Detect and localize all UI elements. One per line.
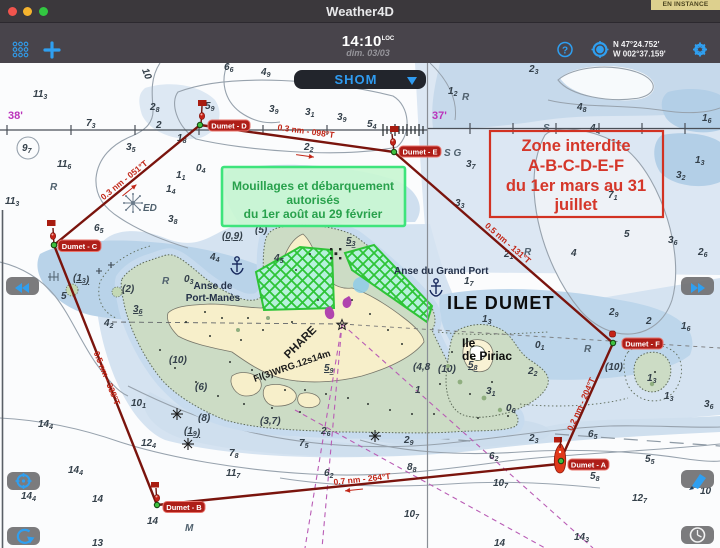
svg-text:Dumet - C: Dumet - C [62, 242, 98, 251]
svg-text:37': 37' [432, 110, 447, 122]
svg-text:Dumet - A: Dumet - A [571, 461, 607, 470]
svg-text:W 002°37.159': W 002°37.159' [613, 50, 666, 59]
svg-text:2: 2 [155, 120, 162, 131]
svg-text:Anse de: Anse de [194, 281, 233, 292]
svg-text:R: R [462, 92, 470, 103]
svg-text:du 1er mars au 31: du 1er mars au 31 [506, 177, 646, 195]
svg-text:2: 2 [644, 63, 651, 65]
svg-text:Zone interdite: Zone interdite [521, 137, 630, 155]
svg-text:(2): (2) [122, 284, 135, 295]
svg-text:5: 5 [624, 229, 630, 240]
svg-text:(10): (10) [169, 355, 187, 366]
svg-text:(8): (8) [198, 413, 211, 424]
svg-text:S G: S G [444, 148, 461, 159]
svg-text:du 1er août au 29 février: du 1er août au 29 février [244, 207, 383, 221]
svg-text:2: 2 [645, 316, 652, 327]
svg-text:juillet: juillet [553, 196, 598, 214]
svg-text:N 47°24.752': N 47°24.752' [613, 40, 660, 49]
svg-text:ED: ED [143, 203, 157, 214]
svg-text:4: 4 [570, 248, 577, 259]
svg-text:(3,7): (3,7) [260, 416, 281, 427]
svg-text:de Piriac: de Piriac [462, 349, 512, 363]
svg-text:(6): (6) [195, 382, 208, 393]
svg-text:ILE DUMET: ILE DUMET [447, 293, 555, 313]
svg-text:13: 13 [92, 538, 104, 548]
svg-text:Dumet - D: Dumet - D [211, 122, 247, 131]
svg-text:R: R [584, 344, 592, 355]
svg-text:(0,9): (0,9) [222, 231, 243, 242]
svg-text:M: M [185, 523, 194, 534]
svg-text:14: 14 [92, 494, 104, 505]
svg-text:Dumet - F: Dumet - F [625, 340, 660, 349]
svg-text:5: 5 [61, 291, 67, 302]
svg-text:R: R [50, 182, 58, 193]
svg-text:SHOM: SHOM [335, 72, 378, 87]
svg-text:1: 1 [415, 385, 421, 396]
svg-text:R: R [162, 276, 170, 287]
svg-text:14: 14 [147, 516, 159, 527]
svg-text:Ile: Ile [462, 336, 476, 350]
svg-text:autorisés: autorisés [286, 193, 340, 207]
svg-text:Dumet - B: Dumet - B [166, 503, 202, 512]
svg-text:?: ? [562, 46, 568, 57]
svg-text:Anse du Grand Port: Anse du Grand Port [394, 266, 489, 277]
svg-text:(4,8: (4,8 [413, 362, 431, 373]
svg-text:S: S [543, 123, 550, 134]
svg-text:38': 38' [8, 110, 23, 122]
svg-text:Port-Manès: Port-Manès [186, 293, 241, 304]
svg-text:Mouillages et débarquement: Mouillages et débarquement [232, 179, 394, 193]
svg-text:(10): (10) [605, 362, 623, 373]
svg-text:A-B-C-D-E-F: A-B-C-D-E-F [528, 157, 624, 175]
svg-text:Dumet - E: Dumet - E [402, 148, 437, 157]
svg-text:14: 14 [494, 538, 506, 548]
